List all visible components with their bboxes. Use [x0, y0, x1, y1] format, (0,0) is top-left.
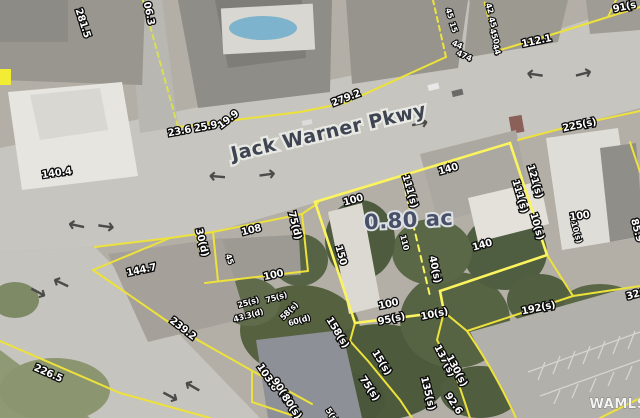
- road-direction-arrow-icon: →: [257, 161, 278, 187]
- road-direction-arrow-icon: →: [208, 164, 228, 189]
- parcel-area-label: 0.80 ac: [363, 206, 453, 235]
- watermark-label: WAMLS: [590, 397, 640, 412]
- map-marker-highlight: [0, 69, 11, 85]
- parcel-map-canvas[interactable]: →→→→→→→→→→→ 281.506.323.6 25.919.9140.42…: [0, 0, 640, 418]
- aerial-map: →→→→→→→→→→→ 281.506.323.6 25.919.9140.42…: [0, 0, 640, 418]
- road-direction-arrow-icon: →: [525, 62, 546, 88]
- swimming-pool: [229, 16, 297, 40]
- road-direction-arrow-icon: →: [96, 213, 117, 239]
